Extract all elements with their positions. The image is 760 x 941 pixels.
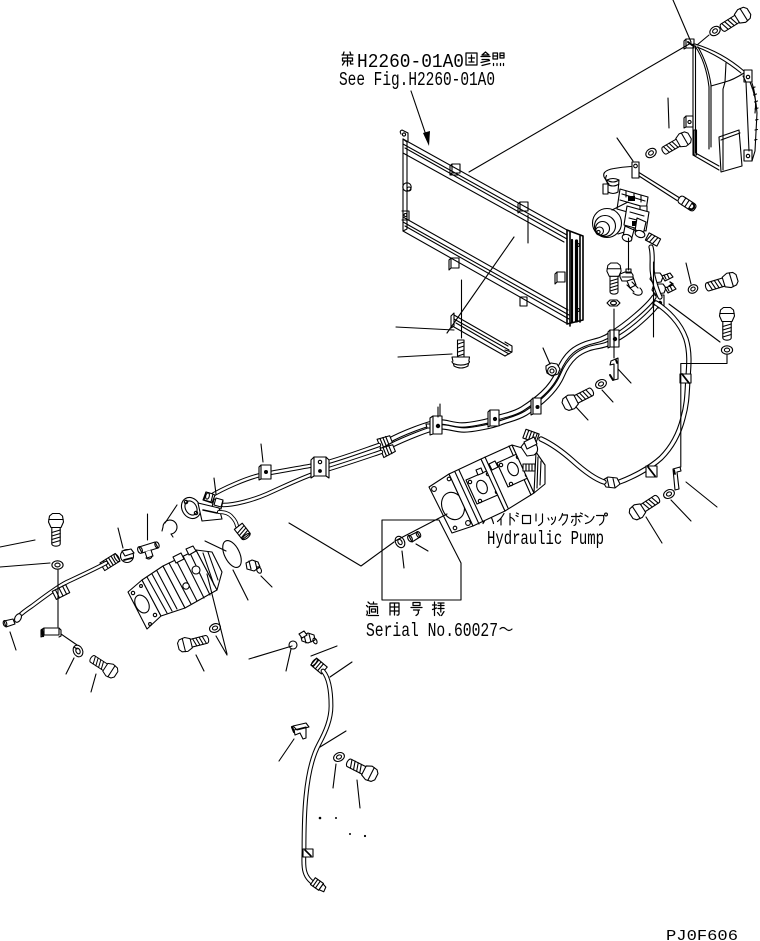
svg-text:PJ0F606: PJ0F606 [666, 929, 738, 941]
svg-text:Serial No.60027: Serial No.60027 [366, 620, 498, 642]
svg-text:See Fig.H2260-01A0: See Fig.H2260-01A0 [339, 69, 495, 91]
svg-text:Hydraulic Pump: Hydraulic Pump [487, 528, 604, 550]
